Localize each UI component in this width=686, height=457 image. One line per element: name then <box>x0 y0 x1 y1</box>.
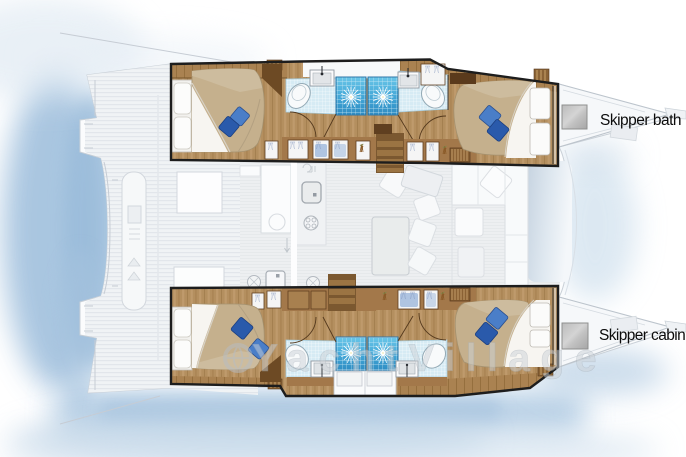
svg-text:Skipper bath: Skipper bath <box>600 112 681 129</box>
svg-text:Skipper cabin: Skipper cabin <box>599 327 685 344</box>
svg-text:YachtVillage: YachtVillage <box>252 337 607 380</box>
